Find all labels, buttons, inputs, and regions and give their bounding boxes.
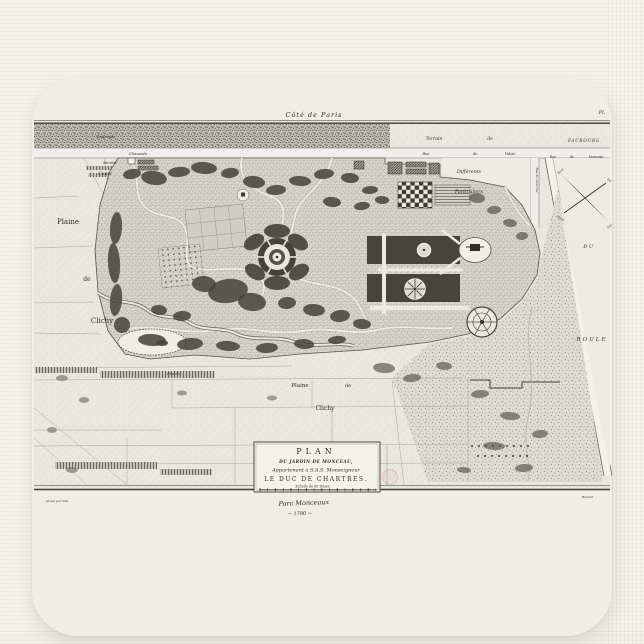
label-roule: ROULE [576,337,608,343]
label-rue-monceau-rue: Rue [549,155,556,159]
label-terrain: Terrain [426,136,443,142]
map-print: Côté de ParisPl.EsplanadeChausséeBarrièr… [32,78,612,636]
label-clichy-left: Clichy [91,317,113,325]
boulevard-tree-band [34,124,390,148]
label-particuliers: Particuliers [454,189,484,195]
cartouche-plan: PLAN [296,447,335,456]
striped-garden [435,185,470,205]
label-rue-valois-de: de [473,152,477,156]
label-esplanade: Esplanade [96,135,116,139]
label-differents: Différents [456,168,482,175]
label-du: DU [582,244,594,250]
label-barriere: Barrière [102,161,117,165]
label-faubourg: FAUBOURG [567,138,600,143]
collection-stamp [383,470,398,485]
label-rue-monceau-monceau: Monceau [588,155,604,159]
label-cote-de-paris: Côté de Paris [286,111,343,119]
checkerboard-garden [398,182,432,208]
product-photo: { "scene": { "product": "mousepad", "pri… [0,0,644,644]
label-terrain-de: de [487,136,493,142]
label-rue-de-chartres: Rue de Chartres [535,167,539,193]
handwriting-date: ~ 1780 ~ [288,511,312,518]
label-rue-monceau-de: de [570,155,574,159]
label-chaussee: Chaussée [129,151,148,156]
photo-background-streaks [608,0,644,644]
label-clichy-bottom: Clichy [315,405,335,412]
label-plaine-left: Plaine [57,218,79,226]
label-cours: Cours [98,171,112,177]
label-de-bottom: de [345,383,351,389]
mousepad: Côté de ParisPl.EsplanadeChausséeBarrièr… [32,78,612,636]
label-prairie: Prairie [166,371,181,376]
label-rue-valois-valois: Valois [505,152,516,156]
label-rue-valois-rue: Rue [422,152,430,156]
label-plate-number: Pl. [598,110,606,116]
label-plaine-bottom: Plaine [291,383,308,389]
label-de-left: de [83,276,91,283]
cartouche-duc-chartres: LE DUC DE CHARTRES. [264,476,368,483]
credit-left: Gravé par Née. [46,499,69,503]
credit-right: Benard. [581,495,594,499]
cartouche-echelle: Echelle de 60 Toises. [294,485,330,489]
cartouche-du-jardin: DU JARDIN DE MONCEAU, [278,459,353,464]
cartouche-appartenant: Appartenant à S.A.S. Monseigneur [271,467,360,474]
